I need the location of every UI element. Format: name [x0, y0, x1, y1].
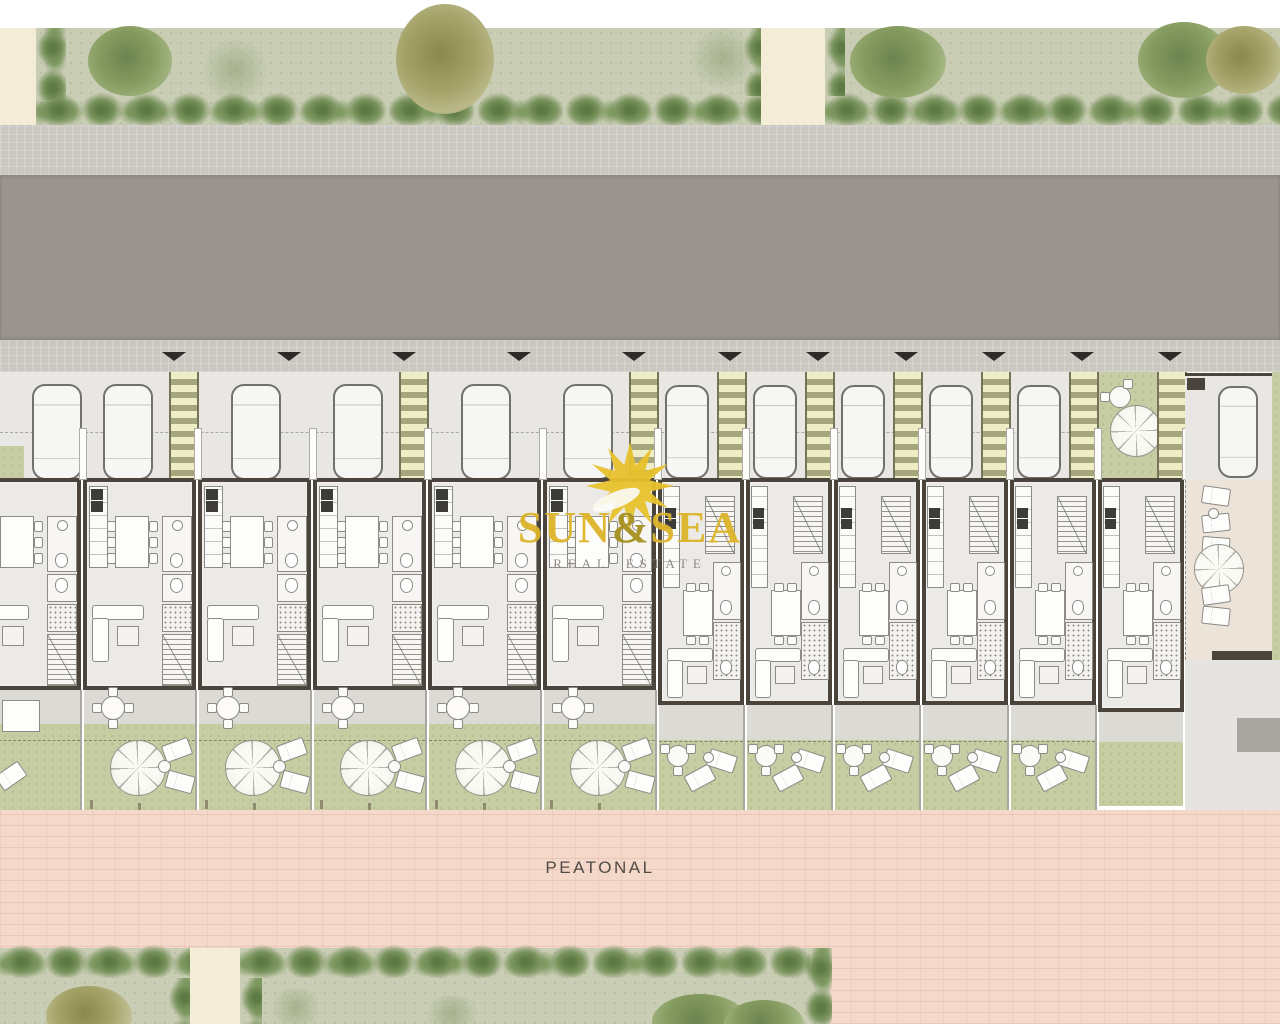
fence-post [550, 800, 553, 809]
sun-lounger [1201, 485, 1231, 507]
hob [206, 501, 218, 512]
sink [632, 520, 643, 531]
entrance-marker [1158, 352, 1182, 361]
chair [264, 521, 273, 532]
kitchen-counter [751, 486, 768, 588]
hob [1017, 519, 1028, 529]
sun-lounger [1201, 584, 1231, 606]
chair [222, 521, 231, 532]
coffee-table [232, 626, 254, 646]
side-table [158, 760, 171, 773]
chair [149, 521, 158, 532]
chair [34, 521, 43, 532]
chair [452, 553, 461, 564]
parking-pier [79, 428, 87, 480]
car [333, 384, 383, 480]
staircase [47, 634, 77, 686]
staircase [622, 634, 652, 686]
chair [849, 766, 859, 776]
chair [1126, 583, 1136, 592]
chair [950, 636, 960, 645]
sink [1073, 566, 1083, 576]
chair [660, 744, 670, 754]
garden-table [561, 696, 585, 720]
sofa [755, 660, 771, 698]
chair [149, 537, 158, 548]
chair [223, 687, 233, 697]
path-hedge [168, 978, 190, 1024]
chair [875, 583, 885, 592]
oven [1017, 508, 1028, 518]
dining-table [1123, 590, 1153, 636]
dining-table [947, 590, 977, 636]
chair [0, 521, 1, 532]
car [103, 384, 153, 480]
car [665, 385, 709, 479]
chair [107, 521, 116, 532]
terrace [923, 705, 1007, 740]
toilet [808, 660, 820, 675]
chair [354, 703, 364, 713]
hob [665, 519, 676, 529]
fence-post [320, 800, 323, 809]
car [563, 384, 613, 480]
car [1017, 385, 1061, 479]
chair [494, 537, 503, 548]
entrance-marker [507, 352, 531, 361]
chair [207, 703, 217, 713]
entrance-marker [982, 352, 1006, 361]
entrance-marker [277, 352, 301, 361]
chair [937, 766, 947, 776]
chair [223, 719, 233, 729]
chair [567, 521, 576, 532]
dining-table [230, 516, 264, 568]
chair [1123, 379, 1133, 389]
car [231, 384, 281, 480]
car [929, 385, 973, 479]
dining-table [683, 590, 713, 636]
chair [453, 687, 463, 697]
chair [1126, 636, 1136, 645]
car [841, 385, 885, 479]
chair [1051, 583, 1061, 592]
sink [517, 520, 528, 531]
staircase [1057, 496, 1087, 554]
chair [494, 521, 503, 532]
garden-divider [540, 690, 542, 810]
chair [567, 553, 576, 564]
sink [402, 520, 413, 531]
chair [584, 703, 594, 713]
garden-divider [831, 705, 833, 810]
utility-patio [47, 604, 77, 632]
dining-table [771, 590, 801, 636]
chair [337, 553, 346, 564]
chair [1038, 744, 1048, 754]
side-table [273, 760, 286, 773]
chair [107, 537, 116, 548]
garden-table [331, 696, 355, 720]
sofa [1107, 660, 1123, 698]
chair [1139, 583, 1149, 592]
chair [1139, 636, 1149, 645]
dining-table [0, 516, 34, 568]
chair [453, 719, 463, 729]
side-table [618, 760, 631, 773]
hob [551, 501, 563, 512]
coffee-table [951, 666, 971, 684]
chair [469, 703, 479, 713]
toilet [1072, 600, 1084, 615]
utility-patio [277, 604, 307, 632]
pedestrian-street-label: PEATONAL [480, 858, 720, 882]
sun-lounger [1201, 606, 1231, 627]
hob [929, 519, 940, 529]
car [1218, 386, 1258, 478]
chair [34, 553, 43, 564]
dining-table [345, 516, 379, 568]
dining-table [1035, 590, 1065, 636]
parking-pier [918, 428, 926, 480]
chair [34, 537, 43, 548]
boundary-wall [1212, 651, 1280, 660]
chair [774, 583, 784, 592]
toilet [285, 553, 298, 568]
bottom-hedge-row [0, 944, 190, 978]
oven [91, 489, 103, 500]
sink [172, 520, 183, 531]
chair [787, 583, 797, 592]
chair [609, 553, 618, 564]
chair [774, 744, 784, 754]
staircase [392, 634, 422, 686]
sink [721, 566, 731, 576]
entrance-marker [392, 352, 416, 361]
kitchen-counter [927, 486, 944, 588]
toilet [170, 553, 183, 568]
garden-table [101, 696, 125, 720]
chair [1025, 766, 1035, 776]
chair [609, 537, 618, 548]
oven [206, 489, 218, 500]
chair [568, 687, 578, 697]
chair [337, 537, 346, 548]
toilet [515, 553, 528, 568]
toilet [896, 600, 908, 615]
chair [1051, 636, 1061, 645]
chair [437, 703, 447, 713]
chair [1038, 636, 1048, 645]
oven [929, 508, 940, 518]
hob [753, 519, 764, 529]
toilet [630, 553, 643, 568]
chair [686, 583, 696, 592]
sink [287, 520, 298, 531]
chair [0, 553, 1, 564]
dining-table [575, 516, 609, 568]
path-hedge [240, 978, 262, 1024]
parking-pier [830, 428, 838, 480]
oven [321, 489, 333, 500]
car [753, 385, 797, 479]
terrace [1099, 712, 1183, 742]
coffee-table [863, 666, 883, 684]
plot-line [0, 740, 80, 741]
chair [379, 521, 388, 532]
sink [1161, 566, 1171, 576]
garden-table [2, 700, 40, 732]
chair [337, 521, 346, 532]
coffee-table [687, 666, 707, 684]
terrace [835, 705, 919, 740]
site-plan: PEATONAL SUN&SEA REAL ESTATE [0, 0, 1280, 1024]
chair [862, 744, 872, 754]
chair [774, 636, 784, 645]
plot-line [659, 741, 743, 742]
toilet [808, 600, 820, 615]
toilet [1072, 660, 1084, 675]
staircase [1145, 496, 1175, 554]
parking-pier [539, 428, 547, 480]
sofa [843, 660, 859, 698]
terrace [747, 705, 831, 740]
chair [924, 744, 934, 754]
kitchen-counter [839, 486, 856, 588]
staircase [162, 634, 192, 686]
garden-divider [1095, 705, 1097, 810]
garden-table [216, 696, 240, 720]
garden-divider [655, 690, 657, 810]
staircase [277, 634, 307, 686]
toilet [720, 660, 732, 675]
sofa [437, 618, 454, 662]
terrace [1011, 705, 1095, 740]
coffee-table [775, 666, 795, 684]
dining-table [859, 590, 889, 636]
chair [338, 719, 348, 729]
sofa [207, 618, 224, 662]
dining-table [460, 516, 494, 568]
chair [673, 766, 683, 776]
sink [809, 566, 819, 576]
parking-pier [742, 428, 750, 480]
utility-patio [507, 604, 537, 632]
hob [91, 501, 103, 512]
chair [761, 766, 771, 776]
utility-box [1187, 378, 1205, 390]
entrance-marker [622, 352, 646, 361]
sofa [322, 618, 339, 662]
staircase [881, 496, 911, 554]
chair [264, 553, 273, 564]
toilet [400, 553, 413, 568]
car [461, 384, 511, 480]
sofa [667, 660, 683, 698]
garden-divider [919, 705, 921, 810]
sink [897, 566, 907, 576]
toilet [400, 578, 413, 593]
coffee-table [117, 626, 139, 646]
sink [985, 566, 995, 576]
fence-post [90, 800, 93, 809]
parking-pier [1094, 428, 1102, 480]
staircase [793, 496, 823, 554]
chair [552, 703, 562, 713]
fence-post [435, 800, 438, 809]
tree [420, 996, 484, 1024]
chair [222, 553, 231, 564]
chair [239, 703, 249, 713]
parking-pier [194, 428, 202, 480]
dining-table [115, 516, 149, 568]
toilet [896, 660, 908, 675]
chair [108, 719, 118, 729]
parking-pier [424, 428, 432, 480]
garden-table [446, 696, 470, 720]
car [32, 384, 82, 480]
chair [379, 553, 388, 564]
oven [841, 508, 852, 518]
fence-post [205, 800, 208, 809]
chair [264, 537, 273, 548]
chair [1038, 583, 1048, 592]
chair [609, 521, 618, 532]
chair [452, 537, 461, 548]
service-pad [1237, 718, 1280, 752]
chair [338, 687, 348, 697]
coffee-table [1039, 666, 1059, 684]
coffee-table [1127, 666, 1147, 684]
side-table [1208, 508, 1219, 519]
chair [787, 636, 797, 645]
chair [568, 719, 578, 729]
chair [222, 537, 231, 548]
parking-pier [1006, 428, 1014, 480]
chair [963, 583, 973, 592]
oven [753, 508, 764, 518]
chair [149, 553, 158, 564]
sofa [931, 660, 947, 698]
toilet [55, 553, 68, 568]
garden-divider [195, 690, 197, 810]
hob [1105, 519, 1116, 529]
toilet [170, 578, 183, 593]
garden-divider [425, 690, 427, 810]
chair [862, 636, 872, 645]
entrance-marker [894, 352, 918, 361]
utility-patio [392, 604, 422, 632]
chair [950, 583, 960, 592]
chair [862, 583, 872, 592]
toilet [515, 578, 528, 593]
oven [665, 508, 676, 518]
sofa [1019, 660, 1035, 698]
hob [841, 519, 852, 529]
side-table [388, 760, 401, 773]
parasol [1110, 405, 1162, 457]
coffee-table [577, 626, 599, 646]
sofa [92, 618, 109, 662]
garden-divider [1007, 705, 1009, 810]
side-table [879, 752, 890, 763]
entrance-marker [1070, 352, 1094, 361]
plot-line [835, 741, 919, 742]
side-table [503, 760, 516, 773]
chair [950, 744, 960, 754]
chair [699, 583, 709, 592]
chair [107, 553, 116, 564]
sink [57, 520, 68, 531]
chair [748, 744, 758, 754]
parking-pier [654, 428, 662, 480]
kitchen-counter [663, 486, 680, 588]
chair [452, 521, 461, 532]
toilet [55, 578, 68, 593]
plot-line [923, 741, 1007, 742]
chair [379, 537, 388, 548]
chair [686, 636, 696, 645]
side-table [1055, 752, 1066, 763]
toilet [285, 578, 298, 593]
entrance-marker [806, 352, 830, 361]
bottom-hedge-right [804, 948, 832, 1024]
kitchen-counter [1015, 486, 1032, 588]
chair [836, 744, 846, 754]
plot-line [747, 741, 831, 742]
side-table [703, 752, 714, 763]
staircase [705, 496, 735, 554]
bottom-hedge-row [240, 944, 810, 978]
entrance-marker [718, 352, 742, 361]
terrace [659, 705, 743, 740]
garden-divider [743, 705, 745, 810]
plot-line [1011, 741, 1095, 742]
edge-planting [1272, 372, 1280, 660]
coffee-table [347, 626, 369, 646]
garden-divider [310, 690, 312, 810]
sofa [552, 618, 569, 662]
parking-pier [309, 428, 317, 480]
chair [494, 553, 503, 564]
coffee-table [2, 626, 24, 646]
chair [124, 703, 134, 713]
utility-patio [162, 604, 192, 632]
oven [551, 489, 563, 500]
toilet [1160, 660, 1172, 675]
sofa [0, 605, 29, 620]
utility-patio [622, 604, 652, 632]
toilet [984, 600, 996, 615]
tree [268, 988, 324, 1024]
entrance-marker [162, 352, 186, 361]
chair [875, 636, 885, 645]
staircase [969, 496, 999, 554]
hob [321, 501, 333, 512]
chair [322, 703, 332, 713]
oven [1105, 508, 1116, 518]
chair [963, 636, 973, 645]
bottom-park-path [190, 948, 240, 1024]
hob [436, 501, 448, 512]
side-table [967, 752, 978, 763]
chair [0, 537, 1, 548]
garden-divider [80, 690, 82, 810]
chair [686, 744, 696, 754]
oven [436, 489, 448, 500]
toilet [1160, 600, 1172, 615]
kitchen-counter [1103, 486, 1120, 588]
